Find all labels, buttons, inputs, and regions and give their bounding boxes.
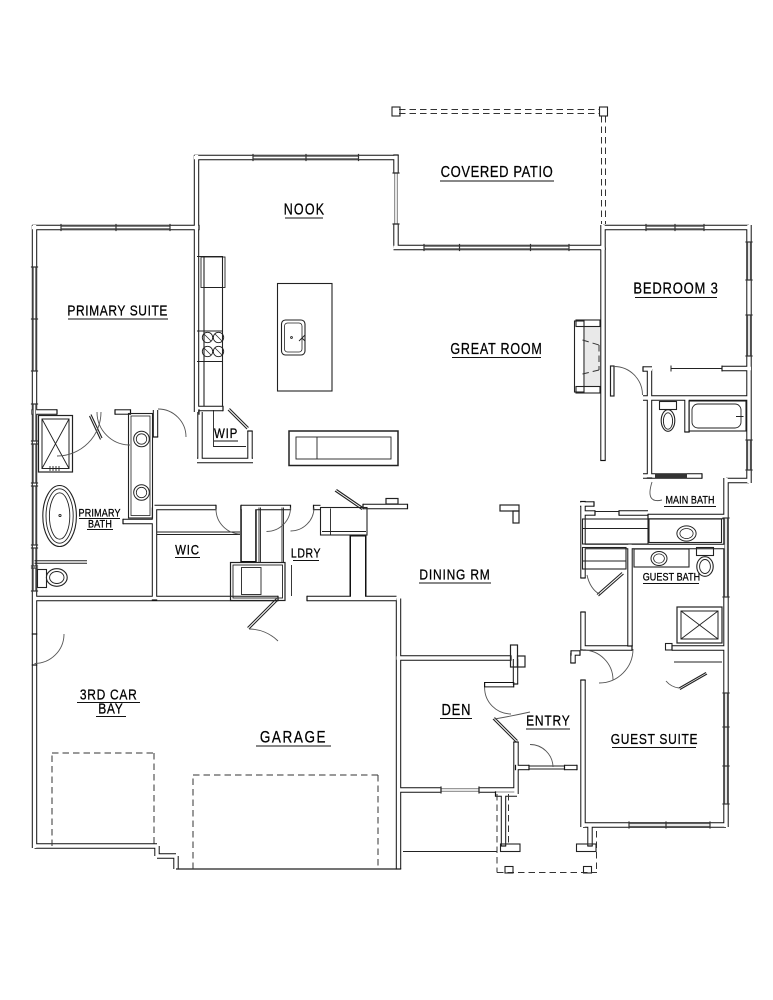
svg-text:BAY: BAY <box>98 700 123 716</box>
svg-text:DEN: DEN <box>441 702 471 719</box>
svg-text:NOOK: NOOK <box>284 200 326 217</box>
svg-text:GARAGE: GARAGE <box>260 728 327 747</box>
svg-text:MAIN BATH: MAIN BATH <box>665 495 714 507</box>
svg-text:GUEST BATH: GUEST BATH <box>643 572 701 584</box>
svg-text:BEDROOM 3: BEDROOM 3 <box>633 280 718 297</box>
svg-text:DINING RM: DINING RM <box>419 566 490 582</box>
svg-text:WIC: WIC <box>175 541 200 557</box>
svg-text:WIP: WIP <box>214 425 238 441</box>
svg-text:COVERED PATIO: COVERED PATIO <box>441 164 554 181</box>
svg-text:GREAT ROOM: GREAT ROOM <box>450 340 542 357</box>
svg-text:PRIMARY SUITE: PRIMARY SUITE <box>67 302 168 318</box>
svg-text:ENTRY: ENTRY <box>526 712 570 728</box>
svg-text:LDRY: LDRY <box>291 547 321 561</box>
svg-text:GUEST SUITE: GUEST SUITE <box>611 731 698 747</box>
